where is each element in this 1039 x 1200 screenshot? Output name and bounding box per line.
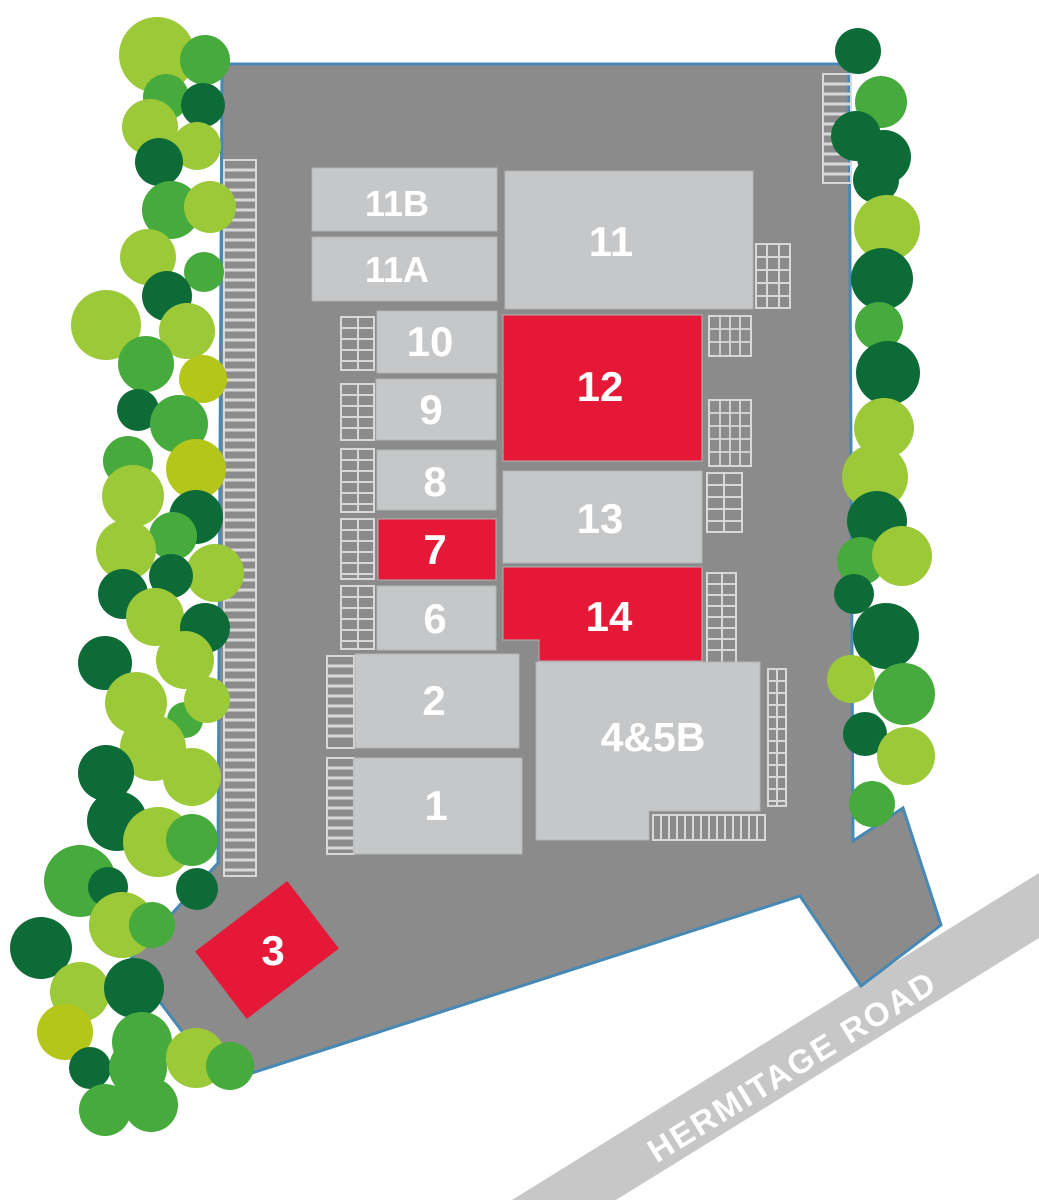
svg-text:11: 11 (589, 218, 633, 265)
svg-text:12: 12 (577, 363, 624, 410)
svg-text:1: 1 (424, 782, 447, 829)
svg-text:4&5B: 4&5B (601, 714, 706, 760)
svg-text:10: 10 (407, 318, 454, 365)
svg-text:14: 14 (586, 593, 633, 640)
svg-text:7: 7 (423, 526, 446, 573)
svg-text:8: 8 (423, 458, 446, 505)
svg-text:13: 13 (577, 495, 624, 542)
svg-text:11B: 11B (365, 183, 429, 224)
svg-text:HERMITAGE ROAD: HERMITAGE ROAD (641, 963, 943, 1169)
svg-text:2: 2 (422, 677, 445, 724)
svg-text:9: 9 (419, 386, 442, 433)
svg-text:3: 3 (261, 927, 284, 974)
svg-text:6: 6 (423, 595, 446, 642)
svg-text:11A: 11A (365, 249, 429, 290)
